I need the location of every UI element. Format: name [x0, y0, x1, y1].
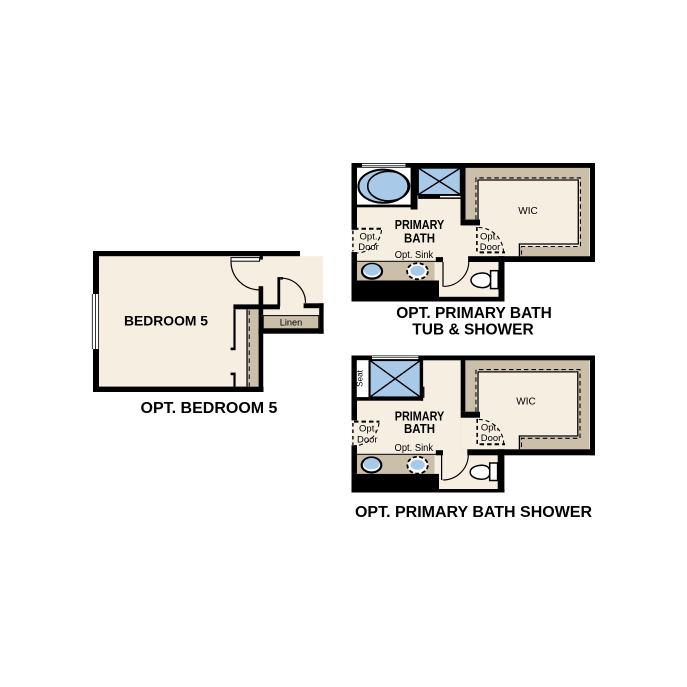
- svg-text:WIC: WIC: [518, 206, 537, 217]
- svg-text:PRIMARY: PRIMARY: [395, 218, 445, 232]
- svg-text:Linen: Linen: [280, 317, 302, 327]
- svg-text:TUB & SHOWER: TUB & SHOWER: [412, 322, 533, 339]
- svg-text:Seat: Seat: [356, 369, 365, 387]
- svg-text:Door: Door: [357, 435, 378, 446]
- svg-text:Door: Door: [358, 242, 379, 253]
- svg-text:BATH: BATH: [404, 231, 435, 245]
- svg-text:OPT. BEDROOM 5: OPT. BEDROOM 5: [141, 400, 278, 417]
- svg-text:Door: Door: [480, 242, 501, 253]
- svg-text:OPT. PRIMARY BATH SHOWER: OPT. PRIMARY BATH SHOWER: [355, 504, 592, 521]
- svg-text:WIC: WIC: [516, 397, 535, 408]
- svg-text:BEDROOM 5: BEDROOM 5: [124, 313, 208, 329]
- svg-text:Opt.: Opt.: [481, 423, 499, 434]
- svg-text:OPT. PRIMARY BATH: OPT. PRIMARY BATH: [396, 305, 552, 322]
- svg-text:BATH: BATH: [404, 422, 435, 436]
- svg-text:Opt.: Opt.: [359, 424, 377, 435]
- svg-text:Door: Door: [481, 433, 502, 444]
- svg-text:Opt. Sink: Opt. Sink: [395, 250, 434, 261]
- svg-text:Opt. Sink: Opt. Sink: [395, 443, 434, 454]
- svg-text:Opt.: Opt.: [360, 231, 378, 242]
